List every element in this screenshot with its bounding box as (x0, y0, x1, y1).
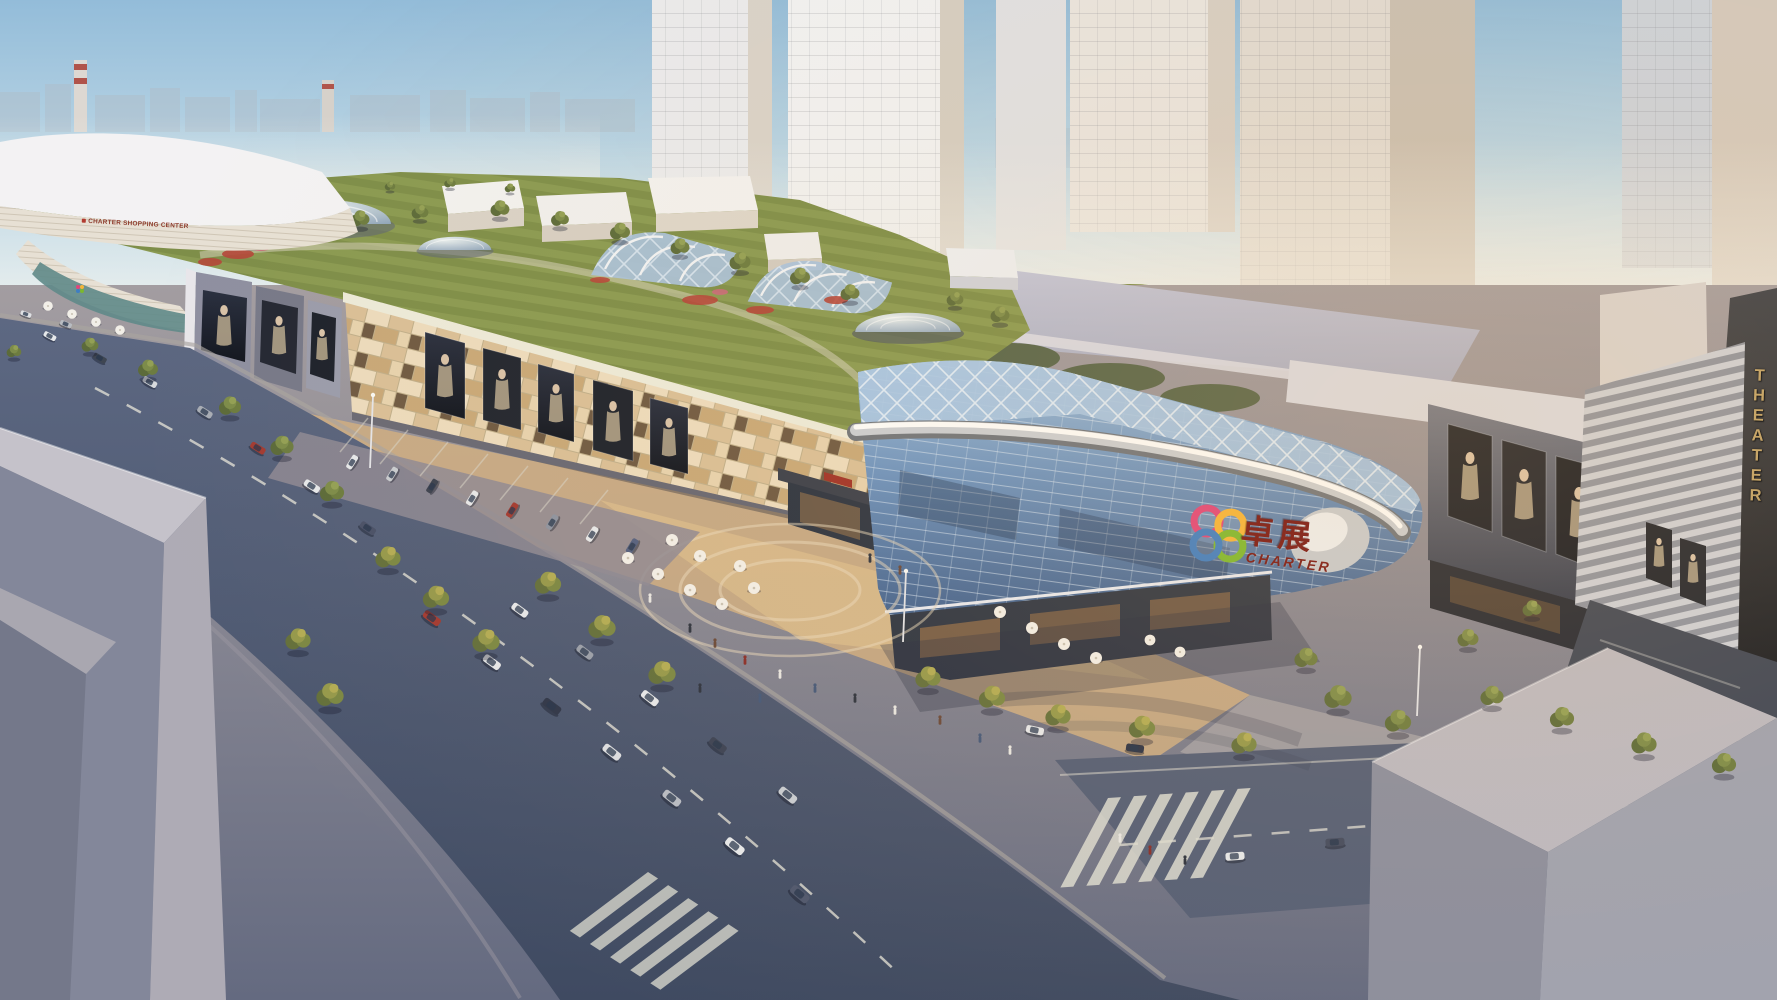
rendering-canvas: CHARTER SHOPPING CENTER 卓展 CHARTER THEAT… (0, 0, 1777, 1000)
scene (0, 0, 1777, 1000)
warm-light-overlay (0, 0, 1777, 1000)
theater-sign: THEATER (1737, 366, 1769, 521)
charter-mini-mark (82, 219, 86, 223)
